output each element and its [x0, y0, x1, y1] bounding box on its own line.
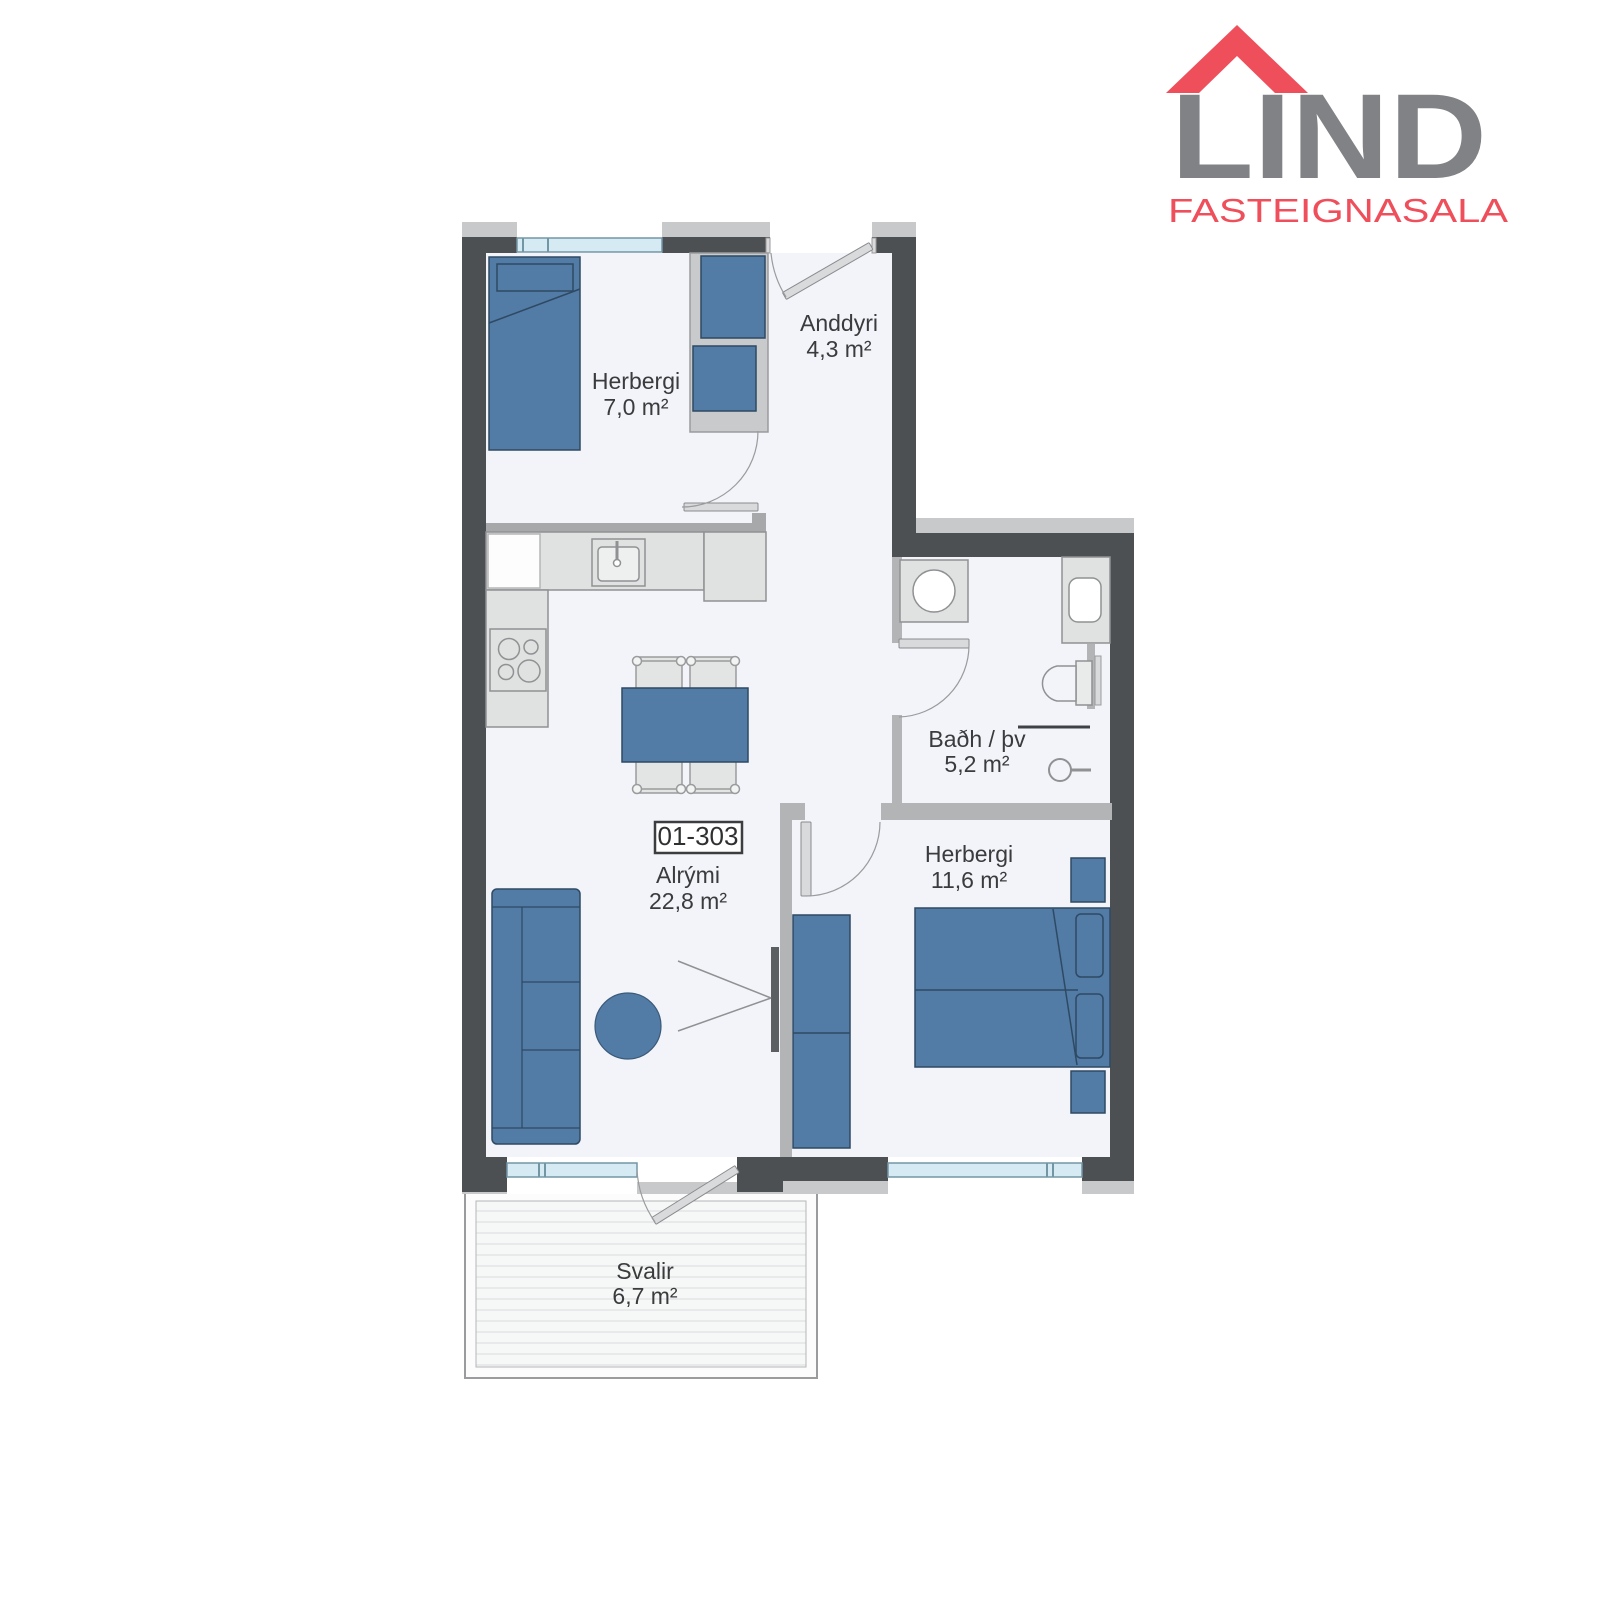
wardrobe2-icon [793, 915, 850, 1148]
washing-machine-icon [900, 560, 968, 622]
bathroom-sink-icon [1062, 557, 1110, 643]
floorplan-page: Herbergi 7,0 m² Anddyri 4,3 m² Baðh / þv… [0, 0, 1600, 1600]
logo-brand-text: LIND [1171, 68, 1487, 204]
logo: LIND FASTEIGNASALA [1166, 25, 1508, 229]
label-svalir-name: Svalir [616, 1258, 674, 1284]
window-living [507, 1163, 637, 1177]
wardrobe1-icon [690, 253, 768, 432]
label-anddyri-area: 4,3 m² [806, 336, 872, 362]
window-bedroom1 [517, 238, 662, 252]
floorplan-canvas: Herbergi 7,0 m² Anddyri 4,3 m² Baðh / þv… [0, 0, 1600, 1600]
stove-icon [490, 629, 546, 691]
logo-subtitle-text: FASTEIGNASALA [1168, 192, 1508, 229]
unit-number-badge: 01-303 [655, 821, 742, 853]
label-svalir-area: 6,7 m² [612, 1283, 678, 1309]
nightstand-top [1071, 858, 1105, 902]
label-anddyri-name: Anddyri [800, 310, 878, 336]
label-herbergi2-area: 11,6 m² [931, 867, 1008, 893]
dishwasher [488, 534, 540, 588]
label-alrymi-area: 22,8 m² [649, 888, 727, 914]
single-bed-icon [489, 257, 580, 450]
double-bed-icon [915, 908, 1110, 1067]
label-herbergi2-name: Herbergi [925, 841, 1013, 867]
floor-plan: Herbergi 7,0 m² Anddyri 4,3 m² Baðh / þv… [462, 222, 1134, 1378]
window-bedroom2 [888, 1163, 1082, 1177]
label-alrymi-name: Alrými [656, 862, 720, 888]
label-herbergi1-name: Herbergi [592, 368, 680, 394]
fridge [704, 532, 766, 601]
dining-table [622, 688, 748, 762]
nightstand-bottom [1071, 1071, 1105, 1113]
unit-number-text: 01-303 [658, 821, 739, 851]
round-table-icon [595, 993, 661, 1059]
label-herbergi1-area: 7,0 m² [603, 394, 669, 420]
label-bath-name: Baðh / þv [928, 726, 1026, 752]
sofa-icon [492, 889, 580, 1144]
label-bath-area: 5,2 m² [944, 751, 1010, 777]
